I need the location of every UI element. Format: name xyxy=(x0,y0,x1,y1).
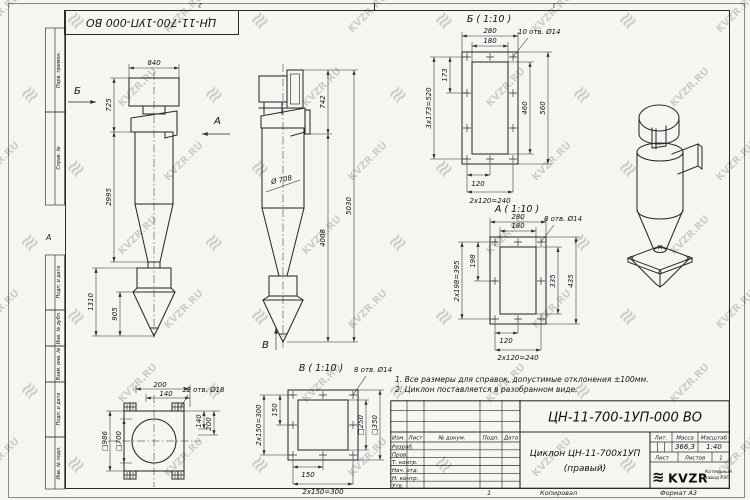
col-data: Дата xyxy=(503,436,519,442)
holes-note: 12 отв. Ø18 xyxy=(182,386,225,394)
dim-905: 905 xyxy=(111,307,119,321)
part-name-line2: (правый) xyxy=(564,464,606,474)
row-tkontr: Т. контр. xyxy=(392,460,418,466)
logo-sub1: Котельный xyxy=(705,469,732,475)
dim-150: 150 xyxy=(271,403,279,417)
logo-text: KVZR xyxy=(668,471,708,486)
dim-395: 2х198=395 xyxy=(453,260,461,302)
designation: ЦН-11-700-1УП-000 ВО xyxy=(548,411,702,426)
dim-986: □986 xyxy=(101,430,109,451)
view-b-dim-lines xyxy=(430,32,552,192)
dim-5030: 5030 xyxy=(345,197,353,215)
view-label-v: В xyxy=(262,340,269,351)
dim-280: 280 xyxy=(483,27,497,35)
dim-700: □700 xyxy=(115,430,123,451)
stamp-label: Взам. инв. № xyxy=(56,348,62,381)
dim-725: 725 xyxy=(105,98,113,112)
bolt-holes xyxy=(491,238,545,323)
stamp-label: Подп. и дата xyxy=(56,393,62,426)
holes-note: 8 отв. Ø14 xyxy=(544,215,582,223)
format-label: Формат А3 xyxy=(660,489,697,497)
dim-840: 840 xyxy=(147,59,161,67)
dim-560: 560 xyxy=(539,101,547,115)
dim-200: 200 xyxy=(205,417,213,431)
lit-label: Лит. xyxy=(654,436,668,442)
list-label: Лист xyxy=(654,456,670,462)
listov-value: 1 xyxy=(719,456,723,462)
view-v-dim-lines xyxy=(260,376,384,484)
dim-520: 3х173=520 xyxy=(425,87,433,129)
flange-a-outline xyxy=(490,237,546,324)
note-line-1: 1. Все размеры для справок, допустимые о… xyxy=(395,375,730,385)
zone-number-2: 2 xyxy=(198,1,202,9)
side-view: Ø 708 В 742 5030 4008 xyxy=(228,56,373,352)
row-utv: Утв. xyxy=(392,483,404,489)
row-nkontr: Н. контр. xyxy=(392,476,419,482)
dim-198: 198 xyxy=(469,254,477,268)
scale-value: 1:40 xyxy=(706,443,722,451)
dim-120: 120 xyxy=(471,180,485,188)
view-a: А ( 1:10 ) 280 180 8 отв. Ø14 198 2х198=… xyxy=(420,203,602,371)
zone-tick xyxy=(374,3,375,10)
front-view: Б А 840 725 2995 1310 905 xyxy=(66,52,234,340)
stamp-label: Подп. и дата xyxy=(56,266,62,299)
dim-742: 742 xyxy=(319,95,327,109)
copied-label: Копировал xyxy=(540,489,577,497)
view-v-title: В ( 1:10 ) xyxy=(299,363,343,374)
dim-4008: 4008 xyxy=(319,229,327,247)
title-block: ЦН-11-700-1УП-000 ВО Циклон ЦН-11-700х1У… xyxy=(390,400,730,489)
stamp-label: Инв. № дубл. xyxy=(56,312,62,345)
bottom-number: 1 xyxy=(487,489,491,497)
view-label-b: Б xyxy=(74,86,81,97)
isometric-view xyxy=(612,90,727,300)
zone-number-1: 1 xyxy=(552,1,556,9)
isometric-outline xyxy=(628,105,702,287)
mass-value: 366,3 xyxy=(675,443,695,451)
col-podp: Подп. xyxy=(483,436,500,442)
dim-150: 150 xyxy=(301,471,315,479)
dim-335: 335 xyxy=(549,274,557,288)
holes-note: 10 отв. Ø14 xyxy=(518,28,561,36)
bolt-marks xyxy=(630,245,690,273)
dim-120: 120 xyxy=(499,337,513,345)
row-razrab: Разраб. xyxy=(392,445,414,451)
dim-350: □350 xyxy=(371,414,379,435)
scale-label: Масштаб xyxy=(701,436,728,442)
view-b-title: Б ( 1:10 ) xyxy=(467,14,511,25)
dim-140: 140 xyxy=(159,390,173,398)
dim-250: □250 xyxy=(357,414,365,435)
dim-280: 280 xyxy=(511,213,525,221)
dim-173: 173 xyxy=(441,68,449,81)
stamp-label: Перв. примен. xyxy=(56,52,62,88)
col-list: Лист xyxy=(408,436,424,442)
col-dokum: № докум. xyxy=(437,436,465,442)
logo-coil-icon: ≋ xyxy=(652,468,665,486)
flange-v-outline xyxy=(288,390,358,460)
row-nachotd: Нач. отд. xyxy=(392,468,419,474)
view-a-dim-lines xyxy=(458,218,580,350)
holes-note: 8 отв. Ø14 xyxy=(354,366,392,374)
dim-435: 435 xyxy=(567,274,575,288)
dim-180: 180 xyxy=(483,37,497,45)
note-line-2: 2. Циклон поставляется в разобранном вид… xyxy=(395,385,730,395)
dim-140: 140 xyxy=(195,414,203,428)
col-izm: Изм. xyxy=(392,436,405,442)
dim-300: 2х150=300 xyxy=(302,488,344,496)
notes: 1. Все размеры для справок, допустимые о… xyxy=(395,375,730,395)
dim-300: 2х150=300 xyxy=(255,404,263,446)
bolt-holes xyxy=(289,391,357,459)
dim-460: 460 xyxy=(521,101,529,115)
dim-180: 180 xyxy=(511,222,525,230)
row-prov: Пров. xyxy=(392,452,408,458)
stamp-label: Справ. № xyxy=(56,146,62,169)
base-flange-view: 200 140 12 отв. Ø18 140 200 □986 □700 xyxy=(76,383,234,497)
stamp-column: Перв. примен. Справ. № Подп. и дата Инв.… xyxy=(45,10,65,489)
dim-240: 2х120=240 xyxy=(497,354,539,362)
dim-200: 200 xyxy=(153,381,167,389)
dim-1310: 1310 xyxy=(87,293,95,311)
rotated-designation-text: ЦН-11-700-1УП-000 ВО xyxy=(86,16,216,29)
rotated-designation-box: ЦН-11-700-1УП-000 ВО xyxy=(64,10,239,35)
view-label-a: А xyxy=(213,116,221,127)
dim-d708: Ø 708 xyxy=(269,174,293,187)
listov-label: Листов xyxy=(684,456,706,462)
logo-sub2: завод РЭП xyxy=(705,475,730,481)
drawing-sheet: { "watermark": { "text": "KVZR.RU", "log… xyxy=(0,0,750,500)
cyclone-side-outline xyxy=(259,70,310,342)
view-b: Б ( 1:10 ) 280 180 10 отв. Ø14 173 3х173… xyxy=(392,12,574,214)
flange-b-outline xyxy=(462,52,518,164)
stamp-label: Инв. № подл. xyxy=(56,446,62,479)
part-name-line1: Циклон ЦН-11-700х1УП xyxy=(530,449,641,459)
view-v: В ( 1:10 ) 8 отв. Ø14 150 2х150=300 □250… xyxy=(236,360,414,496)
dim-2995: 2995 xyxy=(105,188,113,206)
bolt-holes xyxy=(463,53,517,163)
mass-label: Масса xyxy=(676,436,694,442)
